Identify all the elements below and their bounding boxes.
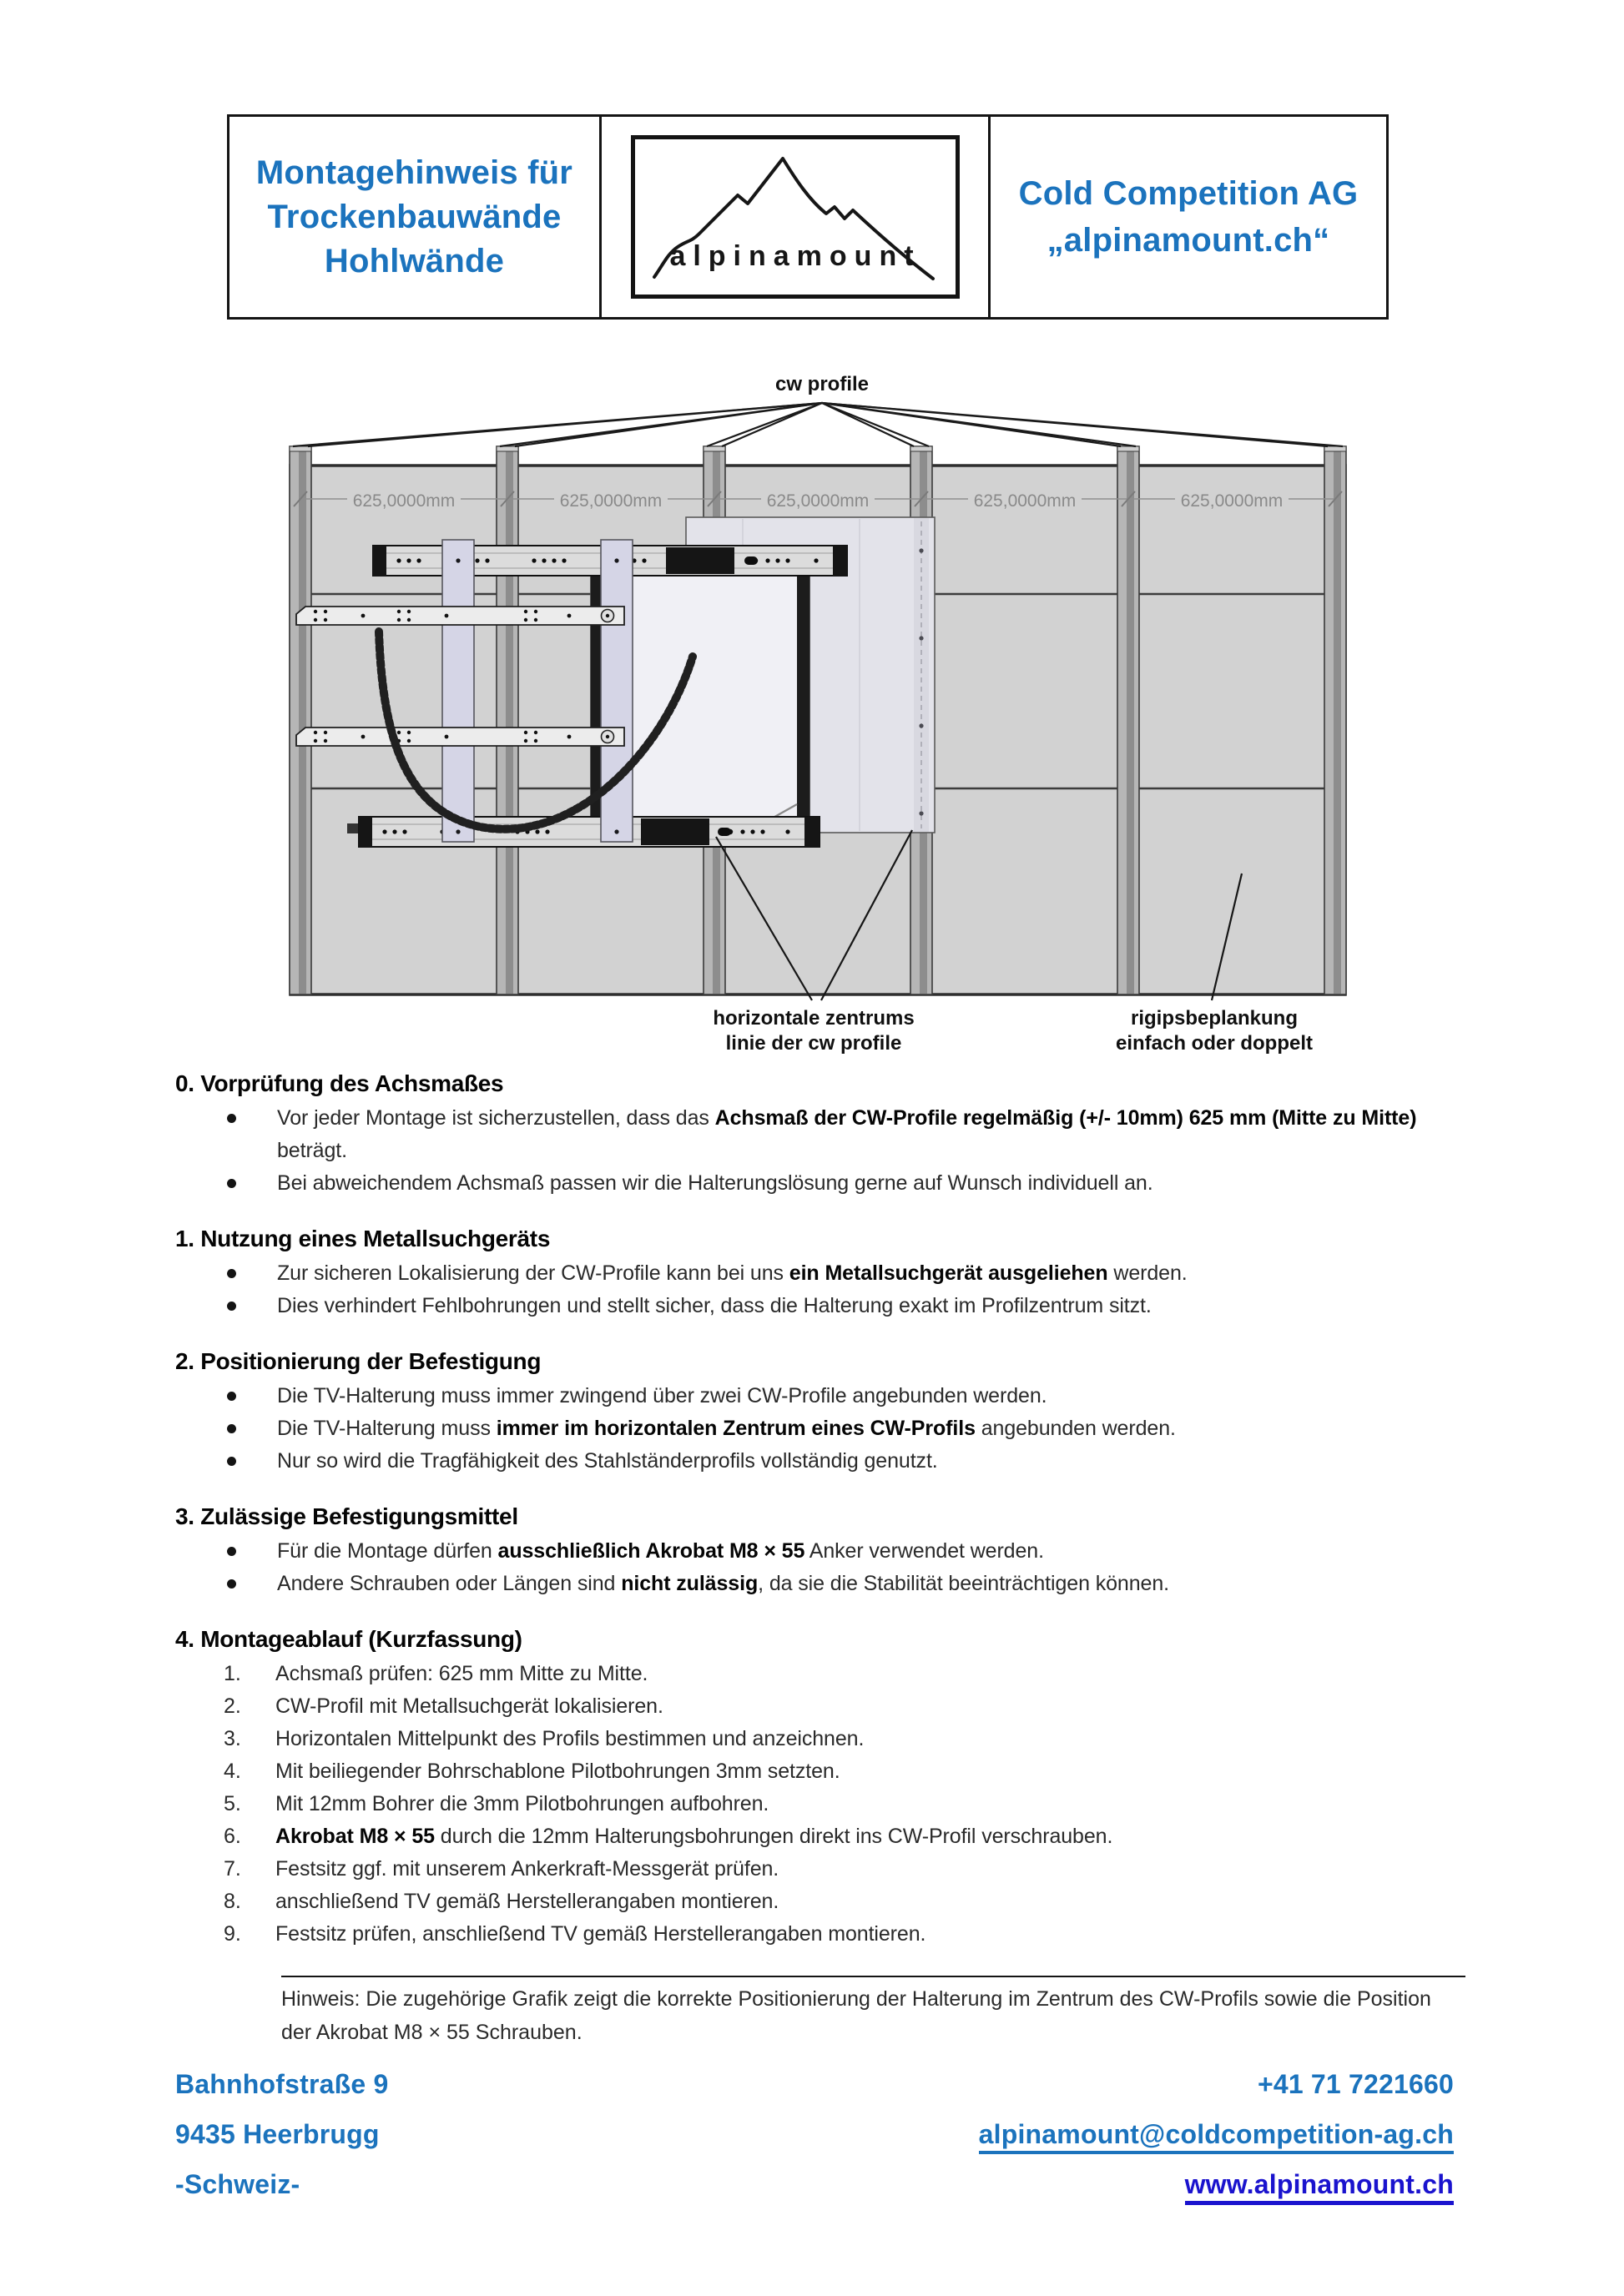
list-item: Bei abweichendem Achsmaß passen wir die … (175, 1167, 1465, 1200)
footer-address: Bahnhofstraße 9 9435 Heerbrugg -Schweiz- (175, 2059, 388, 2209)
bold-run: ein Metallsuchgerät ausgeliehen (789, 1261, 1108, 1285)
list-item-text: Achsmaß prüfen: 625 mm Mitte zu Mitte. (275, 1658, 1465, 1690)
list-item-text: anschließend TV gemäß Herstellerangaben … (275, 1886, 1465, 1918)
cw-stud (1117, 446, 1139, 994)
header-table: Montagehinweis für Trockenbauwände Hohlw… (227, 114, 1389, 320)
email-link[interactable]: alpinamount@coldcompetition-ag.ch (979, 2117, 1454, 2154)
text-run: Dies verhindert Fehlbohrungen und stellt… (277, 1294, 1152, 1317)
header-title-line: Hohlwände (229, 239, 599, 284)
company-name: Cold Competition AG (991, 170, 1386, 217)
instruction-section: 0. Vorprüfung des AchsmaßesVor jeder Mon… (175, 1070, 1465, 1200)
list-item: Für die Montage dürfen ausschließlich Ak… (175, 1535, 1465, 1568)
text-run: Festsitz ggf. mit unserem Ankerkraft-Mes… (275, 1857, 779, 1881)
list-item-text: Festsitz ggf. mit unserem Ankerkraft-Mes… (275, 1853, 1465, 1886)
header-logo-cell: alpinamount (602, 117, 991, 317)
bold-run: immer im horizontalen Zentrum eines CW-P… (497, 1417, 976, 1440)
text-run: Vor jeder Montage ist sicherzustellen, d… (277, 1106, 715, 1130)
bullet-icon (227, 1547, 236, 1556)
cw-stud (1324, 446, 1346, 994)
instruction-section: 3. Zulässige BefestigungsmittelFür die M… (175, 1503, 1465, 1600)
list-item-text: Vor jeder Montage ist sicherzustellen, d… (277, 1102, 1465, 1167)
bottom-slide-rail (347, 817, 820, 847)
list-item-text: Mit beiliegender Bohrschablone Pilotbohr… (275, 1755, 1465, 1788)
list-item: Dies verhindert Fehlbohrungen und stellt… (175, 1290, 1465, 1322)
list-item: 2.CW-Profil mit Metallsuchgerät lokalisi… (175, 1690, 1465, 1723)
dimension-label: 625,0000mm (353, 491, 456, 511)
header-title-cell: Montagehinweis für Trockenbauwände Hohlw… (229, 117, 602, 317)
bullet-icon (227, 1269, 236, 1278)
list-number: 2. (224, 1690, 275, 1723)
bullet-icon (227, 1302, 236, 1311)
board-label: einfach oder doppelt (1116, 1032, 1313, 1055)
cw-profile-label: cw profile (775, 373, 869, 395)
bullet-icon (227, 1579, 236, 1589)
bold-run: Akrobat M8 × 55 (275, 1825, 435, 1848)
website-link[interactable]: www.alpinamount.ch (1185, 2168, 1454, 2205)
wall-mount-diagram: 625,0000mm 625,0000mm 625,0000mm 625,000… (275, 363, 1369, 1055)
phone-number: +41 71 7221660 (979, 2059, 1454, 2109)
list-item-text: Die TV-Halterung muss immer zwingend übe… (277, 1380, 1465, 1412)
list-item-text: CW-Profil mit Metallsuchgerät lokalisier… (275, 1690, 1465, 1723)
list-number: 3. (224, 1723, 275, 1755)
header-title-line: Trockenbauwände (229, 195, 599, 239)
list-number: 5. (224, 1788, 275, 1820)
cw-stud (290, 446, 311, 994)
dimension-line: 625,0000mm 625,0000mm 625,0000mm 625,000… (294, 487, 1342, 511)
text-run: Mit beiliegender Bohrschablone Pilotbohr… (275, 1760, 840, 1783)
cw-stud (497, 446, 518, 994)
dimension-label: 625,0000mm (767, 491, 870, 511)
text-run: angebunden werden. (976, 1417, 1176, 1440)
logo-wordmark: alpinamount (669, 240, 920, 272)
mountain-logo-icon: alpinamount (639, 143, 951, 290)
list-item: Nur so wird die Tragfähigkeit des Stahls… (175, 1445, 1465, 1478)
bullet-icon (227, 1424, 236, 1433)
section-heading: 3. Zulässige Befestigungsmittel (175, 1503, 1465, 1531)
cw-profile-callout: cw profile (293, 373, 1343, 446)
text-run: Festsitz prüfen, anschließend TV gemäß H… (275, 1922, 925, 1946)
header-company-cell: Cold Competition AG „alpinamount.ch“ (991, 117, 1386, 317)
text-run: Mit 12mm Bohrer die 3mm Pilotbohrungen a… (275, 1792, 769, 1815)
list-item-text: Akrobat M8 × 55 durch die 12mm Halterung… (275, 1820, 1465, 1853)
text-run: Bei abweichendem Achsmaß passen wir die … (277, 1171, 1153, 1195)
text-run: beträgt. (277, 1139, 347, 1162)
instruction-section: 1. Nutzung eines MetallsuchgerätsZur sic… (175, 1225, 1465, 1322)
list-item: 4.Mit beiliegender Bohrschablone Pilotbo… (175, 1755, 1465, 1788)
list-item: Die TV-Halterung muss immer im horizonta… (175, 1412, 1465, 1445)
list-item: 9.Festsitz prüfen, anschließend TV gemäß… (175, 1918, 1465, 1951)
footer: Bahnhofstraße 9 9435 Heerbrugg -Schweiz-… (175, 2059, 1454, 2209)
list-item: 7.Festsitz ggf. mit unserem Ankerkraft-M… (175, 1853, 1465, 1886)
section-heading: 4. Montageablauf (Kurzfassung) (175, 1625, 1465, 1654)
note-separator (281, 1976, 1465, 1977)
list-item-text: Festsitz prüfen, anschließend TV gemäß H… (275, 1918, 1465, 1951)
list-item: Zur sicheren Lokalisierung der CW-Profil… (175, 1257, 1465, 1290)
address-city: 9435 Heerbrugg (175, 2109, 388, 2159)
text-run: Die TV-Halterung muss (277, 1417, 497, 1440)
address-street: Bahnhofstraße 9 (175, 2059, 388, 2109)
list-item-text: Andere Schrauben oder Längen sind nicht … (277, 1568, 1465, 1600)
list-item: 8.anschließend TV gemäß Herstellerangabe… (175, 1886, 1465, 1918)
bold-run: Achsmaß der CW-Profile regelmäßig (+/- 1… (715, 1106, 1417, 1130)
list-number: 1. (224, 1658, 275, 1690)
company-domain: „alpinamount.ch“ (991, 217, 1386, 264)
list-item-text: Mit 12mm Bohrer die 3mm Pilotbohrungen a… (275, 1788, 1465, 1820)
list-number: 4. (224, 1755, 275, 1788)
header-title-line: Montagehinweis für (229, 151, 599, 195)
list-item: 6.Akrobat M8 × 55 durch die 12mm Halteru… (175, 1820, 1465, 1853)
list-item: Vor jeder Montage ist sicherzustellen, d… (175, 1102, 1465, 1167)
list-item: 3.Horizontalen Mittelpunkt des Profils b… (175, 1723, 1465, 1755)
text-run: Für die Montage dürfen (277, 1539, 498, 1563)
bullet-icon (227, 1179, 236, 1188)
list-item-text: Dies verhindert Fehlbohrungen und stellt… (277, 1290, 1465, 1322)
document-page: Montagehinweis für Trockenbauwände Hohlw… (0, 0, 1624, 2296)
text-run: , da sie die Stabilität beeinträchtigen … (758, 1572, 1169, 1595)
list-item: 1.Achsmaß prüfen: 625 mm Mitte zu Mitte. (175, 1658, 1465, 1690)
section-heading: 1. Nutzung eines Metallsuchgeräts (175, 1225, 1465, 1253)
list-item-text: Zur sicheren Lokalisierung der CW-Profil… (277, 1257, 1465, 1290)
text-run: werden. (1108, 1261, 1188, 1285)
text-run: Die TV-Halterung muss immer zwingend übe… (277, 1384, 1047, 1407)
text-run: anschließend TV gemäß Herstellerangaben … (275, 1890, 779, 1913)
text-run: Horizontalen Mittelpunkt des Profils bes… (275, 1727, 864, 1750)
list-item-text: Nur so wird die Tragfähigkeit des Stahls… (277, 1445, 1465, 1478)
center-line-label: horizontale zentrums (713, 1007, 914, 1030)
text-run: Nur so wird die Tragfähigkeit des Stahls… (277, 1449, 938, 1473)
section-heading: 0. Vorprüfung des Achsmaßes (175, 1070, 1465, 1098)
list-number: 9. (224, 1918, 275, 1951)
dimension-label: 625,0000mm (974, 491, 1077, 511)
board-label: rigipsbeplankung (1131, 1007, 1298, 1030)
alpinamount-logo: alpinamount (631, 135, 960, 299)
list-item-text: Bei abweichendem Achsmaß passen wir die … (277, 1167, 1465, 1200)
instruction-section: 2. Positionierung der BefestigungDie TV-… (175, 1347, 1465, 1478)
bullet-icon (227, 1457, 236, 1466)
bullet-icon (227, 1114, 236, 1123)
bold-run: ausschließlich Akrobat M8 × 55 (498, 1539, 805, 1563)
text-run: durch die 12mm Halterungsbohrungen direk… (435, 1825, 1112, 1848)
list-item-text: Horizontalen Mittelpunkt des Profils bes… (275, 1723, 1465, 1755)
list-item-text: Die TV-Halterung muss immer im horizonta… (277, 1412, 1465, 1445)
section-heading: 2. Positionierung der Befestigung (175, 1347, 1465, 1376)
bold-run: nicht zulässig (621, 1572, 758, 1595)
list-item-text: Für die Montage dürfen ausschließlich Ak… (277, 1535, 1465, 1568)
list-number: 8. (224, 1886, 275, 1918)
list-item: Die TV-Halterung muss immer zwingend übe… (175, 1380, 1465, 1412)
list-item: 5.Mit 12mm Bohrer die 3mm Pilotbohrungen… (175, 1788, 1465, 1820)
address-country: -Schweiz- (175, 2159, 388, 2209)
text-run: Zur sicheren Lokalisierung der CW-Profil… (277, 1261, 789, 1285)
dimension-label: 625,0000mm (560, 491, 663, 511)
text-run: Anker verwendet werden. (804, 1539, 1044, 1563)
text-run: CW-Profil mit Metallsuchgerät lokalisier… (275, 1694, 663, 1718)
bullet-icon (227, 1392, 236, 1401)
text-run: Achsmaß prüfen: 625 mm Mitte zu Mitte. (275, 1662, 648, 1685)
footer-contact: +41 71 7221660 alpinamount@coldcompetiti… (979, 2059, 1454, 2209)
text-run: Andere Schrauben oder Längen sind (277, 1572, 621, 1595)
list-number: 6. (224, 1820, 275, 1853)
instruction-section: 4. Montageablauf (Kurzfassung)1.Achsmaß … (175, 1625, 1465, 1951)
center-line-label: linie der cw profile (726, 1032, 902, 1055)
sections: 0. Vorprüfung des AchsmaßesVor jeder Mon… (175, 1070, 1465, 2049)
dimension-label: 625,0000mm (1181, 491, 1284, 511)
list-item: Andere Schrauben oder Längen sind nicht … (175, 1568, 1465, 1600)
note-text: Hinweis: Die zugehörige Grafik zeigt die… (281, 1982, 1454, 2049)
list-number: 7. (224, 1853, 275, 1886)
